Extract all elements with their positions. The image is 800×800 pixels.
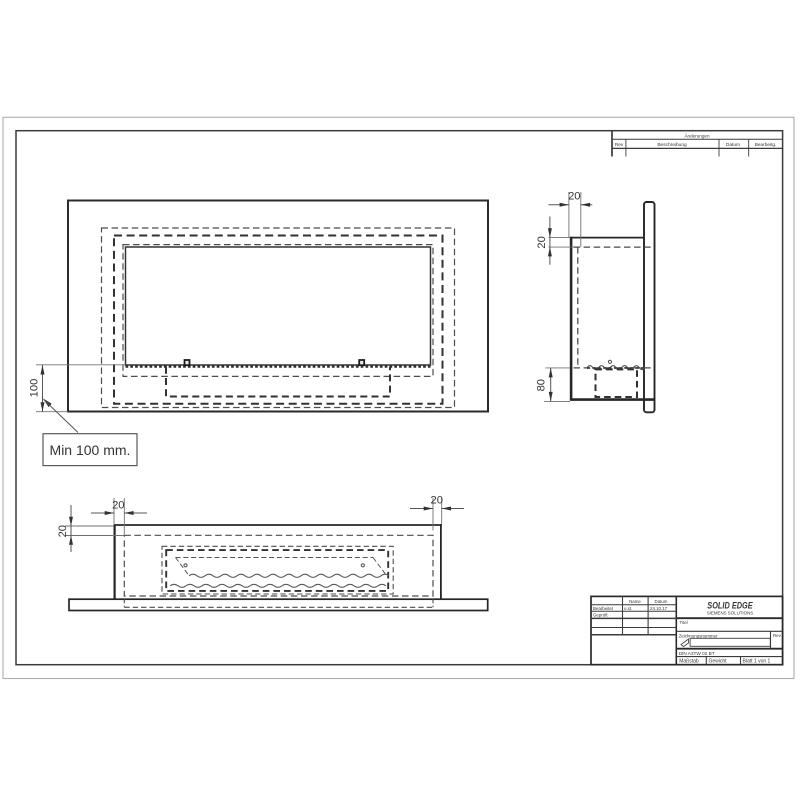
- svg-text:Min 100 mm.: Min 100 mm.: [50, 442, 131, 458]
- svg-text:u.st.: u.st.: [624, 606, 632, 611]
- svg-text:24.10.17: 24.10.17: [650, 606, 668, 611]
- svg-text:Geprüft: Geprüft: [593, 613, 608, 618]
- svg-text:Rev: Rev: [773, 633, 782, 638]
- svg-text:20: 20: [57, 525, 69, 537]
- svg-text:Rev: Rev: [615, 142, 624, 148]
- svg-text:Bearbeitg.: Bearbeitg.: [755, 142, 777, 148]
- svg-text:Datum: Datum: [655, 599, 668, 604]
- svg-text:20: 20: [536, 236, 548, 248]
- svg-text:20: 20: [568, 191, 580, 203]
- svg-text:Titel: Titel: [680, 620, 688, 625]
- svg-text:Beschreibung: Beschreibung: [657, 142, 687, 148]
- svg-text:20: 20: [430, 494, 442, 506]
- svg-text:80: 80: [536, 379, 548, 391]
- svg-text:Name: Name: [629, 599, 641, 604]
- svg-text:Änderungen: Änderungen: [684, 133, 709, 139]
- svg-text:Datum: Datum: [726, 142, 740, 148]
- svg-text:Gewicht: Gewicht: [709, 659, 728, 665]
- svg-text:DIN A3TW 02 BT: DIN A3TW 02 BT: [679, 651, 715, 656]
- svg-text:20: 20: [112, 499, 124, 511]
- svg-text:SIEMENS SOLUTIONS: SIEMENS SOLUTIONS: [707, 611, 753, 616]
- svg-text:Zeichnungsnummer: Zeichnungsnummer: [679, 633, 718, 638]
- svg-text:Bearbeitet: Bearbeitet: [593, 606, 614, 611]
- svg-text:Blatt 1 von 1: Blatt 1 von 1: [743, 659, 771, 665]
- svg-text:Maßstab: Maßstab: [679, 659, 699, 665]
- svg-text:100: 100: [28, 379, 40, 398]
- svg-text:SOLID EDGE: SOLID EDGE: [707, 600, 753, 611]
